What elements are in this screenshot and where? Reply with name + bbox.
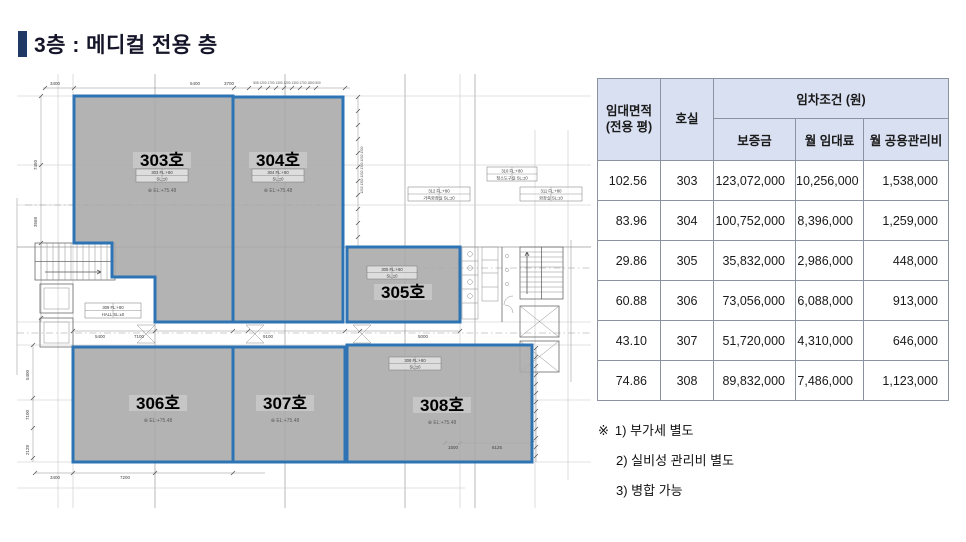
svg-text:312 FL:+80: 312 FL:+80 <box>428 189 450 194</box>
table-row: 43.10 307 51,720,000 4,310,000 646,000 <box>598 321 949 361</box>
table-row: 29.86 305 35,832,000 2,986,000 448,000 <box>598 241 949 281</box>
footnote-3: 3) 병합 가능 <box>598 476 734 506</box>
reference-mark: ※ <box>598 423 609 438</box>
svg-text:9100: 9100 <box>263 334 274 339</box>
svg-text:7100: 7100 <box>25 409 30 420</box>
room-308-el: ⊕ EL:+75.48 <box>428 420 457 426</box>
svg-text:SL:±0: SL:±0 <box>387 274 399 279</box>
svg-text:SL:±0: SL:±0 <box>157 177 169 182</box>
svg-text:309 FL:+80: 309 FL:+80 <box>102 305 124 310</box>
svg-text:308 FL:+80: 308 FL:+80 <box>404 358 426 363</box>
slide: 3층 : 메디컬 전용 층 <box>0 0 966 542</box>
svg-text:3400: 3400 <box>50 475 61 480</box>
room-307-label: 307호 <box>263 394 307 413</box>
svg-text:2128: 2128 <box>25 444 30 455</box>
floor-plan: 303호 ⊕ EL:+75.48 304호 ⊕ EL:+75.48 305호 3… <box>15 70 595 515</box>
toilet-core <box>460 247 513 322</box>
svg-text:화장실 SL:±0: 화장실 SL:±0 <box>539 195 563 202</box>
svg-text:3700: 3700 <box>224 81 235 86</box>
svg-text:6125: 6125 <box>492 445 503 450</box>
svg-text:가족화장실 SL:±0: 가족화장실 SL:±0 <box>423 195 455 202</box>
page-title-row: 3층 : 메디컬 전용 층 <box>18 29 218 59</box>
room-304-shape <box>233 97 343 322</box>
header-lease-conditions: 임차조건 (원) <box>714 79 949 119</box>
room-305-label: 305호 <box>381 283 425 302</box>
svg-text:SL:±0: SL:±0 <box>410 365 422 370</box>
svg-text:7100: 7100 <box>134 334 145 339</box>
room-306-el: ⊕ EL:+75.48 <box>144 418 173 424</box>
header-room: 호실 <box>661 79 714 161</box>
room-307-el: ⊕ EL:+75.48 <box>271 418 300 424</box>
left-stair <box>35 243 115 280</box>
room-306-label: 306호 <box>136 394 180 413</box>
svg-text:5400: 5400 <box>190 81 201 86</box>
svg-text:5000: 5000 <box>418 334 429 339</box>
svg-text:7450: 7450 <box>33 159 38 170</box>
room-303-shape <box>74 96 233 322</box>
svg-text:305 FL:+80: 305 FL:+80 <box>381 267 403 272</box>
header-area: 임대면적 (전용 평) <box>598 79 661 161</box>
header-deposit: 보증금 <box>714 119 796 161</box>
table-row: 74.86 308 89,832,000 7,486,000 1,123,000 <box>598 361 949 401</box>
room-308-label: 308호 <box>420 396 464 415</box>
table-row: 83.96 304 100,752,000 8,396,000 1,259,00… <box>598 201 949 241</box>
svg-text:1200 1300 1200 1300 1200 1300: 1200 1300 1200 1300 1200 1300 <box>360 146 364 193</box>
footnote-1: ※1) 부가세 별도 <box>598 416 734 446</box>
page-title: 3층 : 메디컬 전용 층 <box>34 29 218 59</box>
svg-text:5400: 5400 <box>95 334 106 339</box>
svg-text:304 FL:+80: 304 FL:+80 <box>267 170 289 175</box>
table-row: 102.56 303 123,072,000 10,256,000 1,538,… <box>598 161 949 201</box>
svg-text:508 1200 1700 1300 1200 1300 1: 508 1200 1700 1300 1200 1300 1700 1800 5… <box>253 81 321 85</box>
header-monthly-fee: 월 공용관리비 <box>864 119 949 161</box>
svg-text:303 FL:+80: 303 FL:+80 <box>151 170 173 175</box>
svg-text:SL:±0: SL:±0 <box>273 177 285 182</box>
svg-text:311 FL:+80: 311 FL:+80 <box>541 189 563 194</box>
room-303-label: 303호 <box>140 151 184 170</box>
title-accent-bar <box>18 31 27 57</box>
svg-text:1500: 1500 <box>448 445 459 450</box>
svg-text:HALL SL:±0: HALL SL:±0 <box>102 312 125 317</box>
svg-text:310 FL:+80: 310 FL:+80 <box>501 169 523 174</box>
right-stair <box>520 247 563 299</box>
room-304-label: 304호 <box>256 151 300 170</box>
left-elevators <box>40 284 73 347</box>
svg-text:3568: 3568 <box>33 216 38 227</box>
footnotes: ※1) 부가세 별도 2) 실비성 관리비 별도 3) 병합 가능 <box>598 416 734 506</box>
room-304-el: ⊕ EL:+75.48 <box>264 188 293 194</box>
svg-text:5400: 5400 <box>25 369 30 380</box>
footnote-2: 2) 실비성 관리비 별도 <box>598 446 734 476</box>
lease-conditions-table: 임대면적 (전용 평) 호실 임차조건 (원) 보증금 월 임대료 월 공용관리… <box>597 78 949 401</box>
svg-text:청소도구실 SL:±0: 청소도구실 SL:±0 <box>496 175 528 182</box>
header-monthly-rent: 월 임대료 <box>796 119 864 161</box>
svg-text:7200: 7200 <box>120 475 131 480</box>
table-row: 60.88 306 73,056,000 6,088,000 913,000 <box>598 281 949 321</box>
room-303-el: ⊕ EL:+75.48 <box>148 188 177 194</box>
door-symbols <box>137 325 371 343</box>
svg-text:3400: 3400 <box>50 81 61 86</box>
